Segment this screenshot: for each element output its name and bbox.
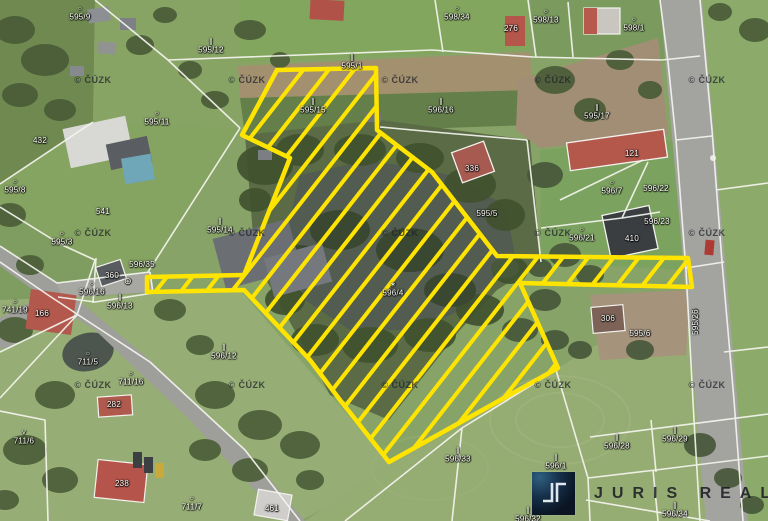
juris-real-logo: JURIS REAL [532,472,768,521]
juris-real-mark-icon [532,472,575,515]
aerial-photo-layer [0,0,768,521]
juris-real-wordmark: JURIS REAL [594,485,768,503]
aerial-map: ○595/9∥595/12○595/11∥595/1○598/34○598/13… [0,0,768,521]
